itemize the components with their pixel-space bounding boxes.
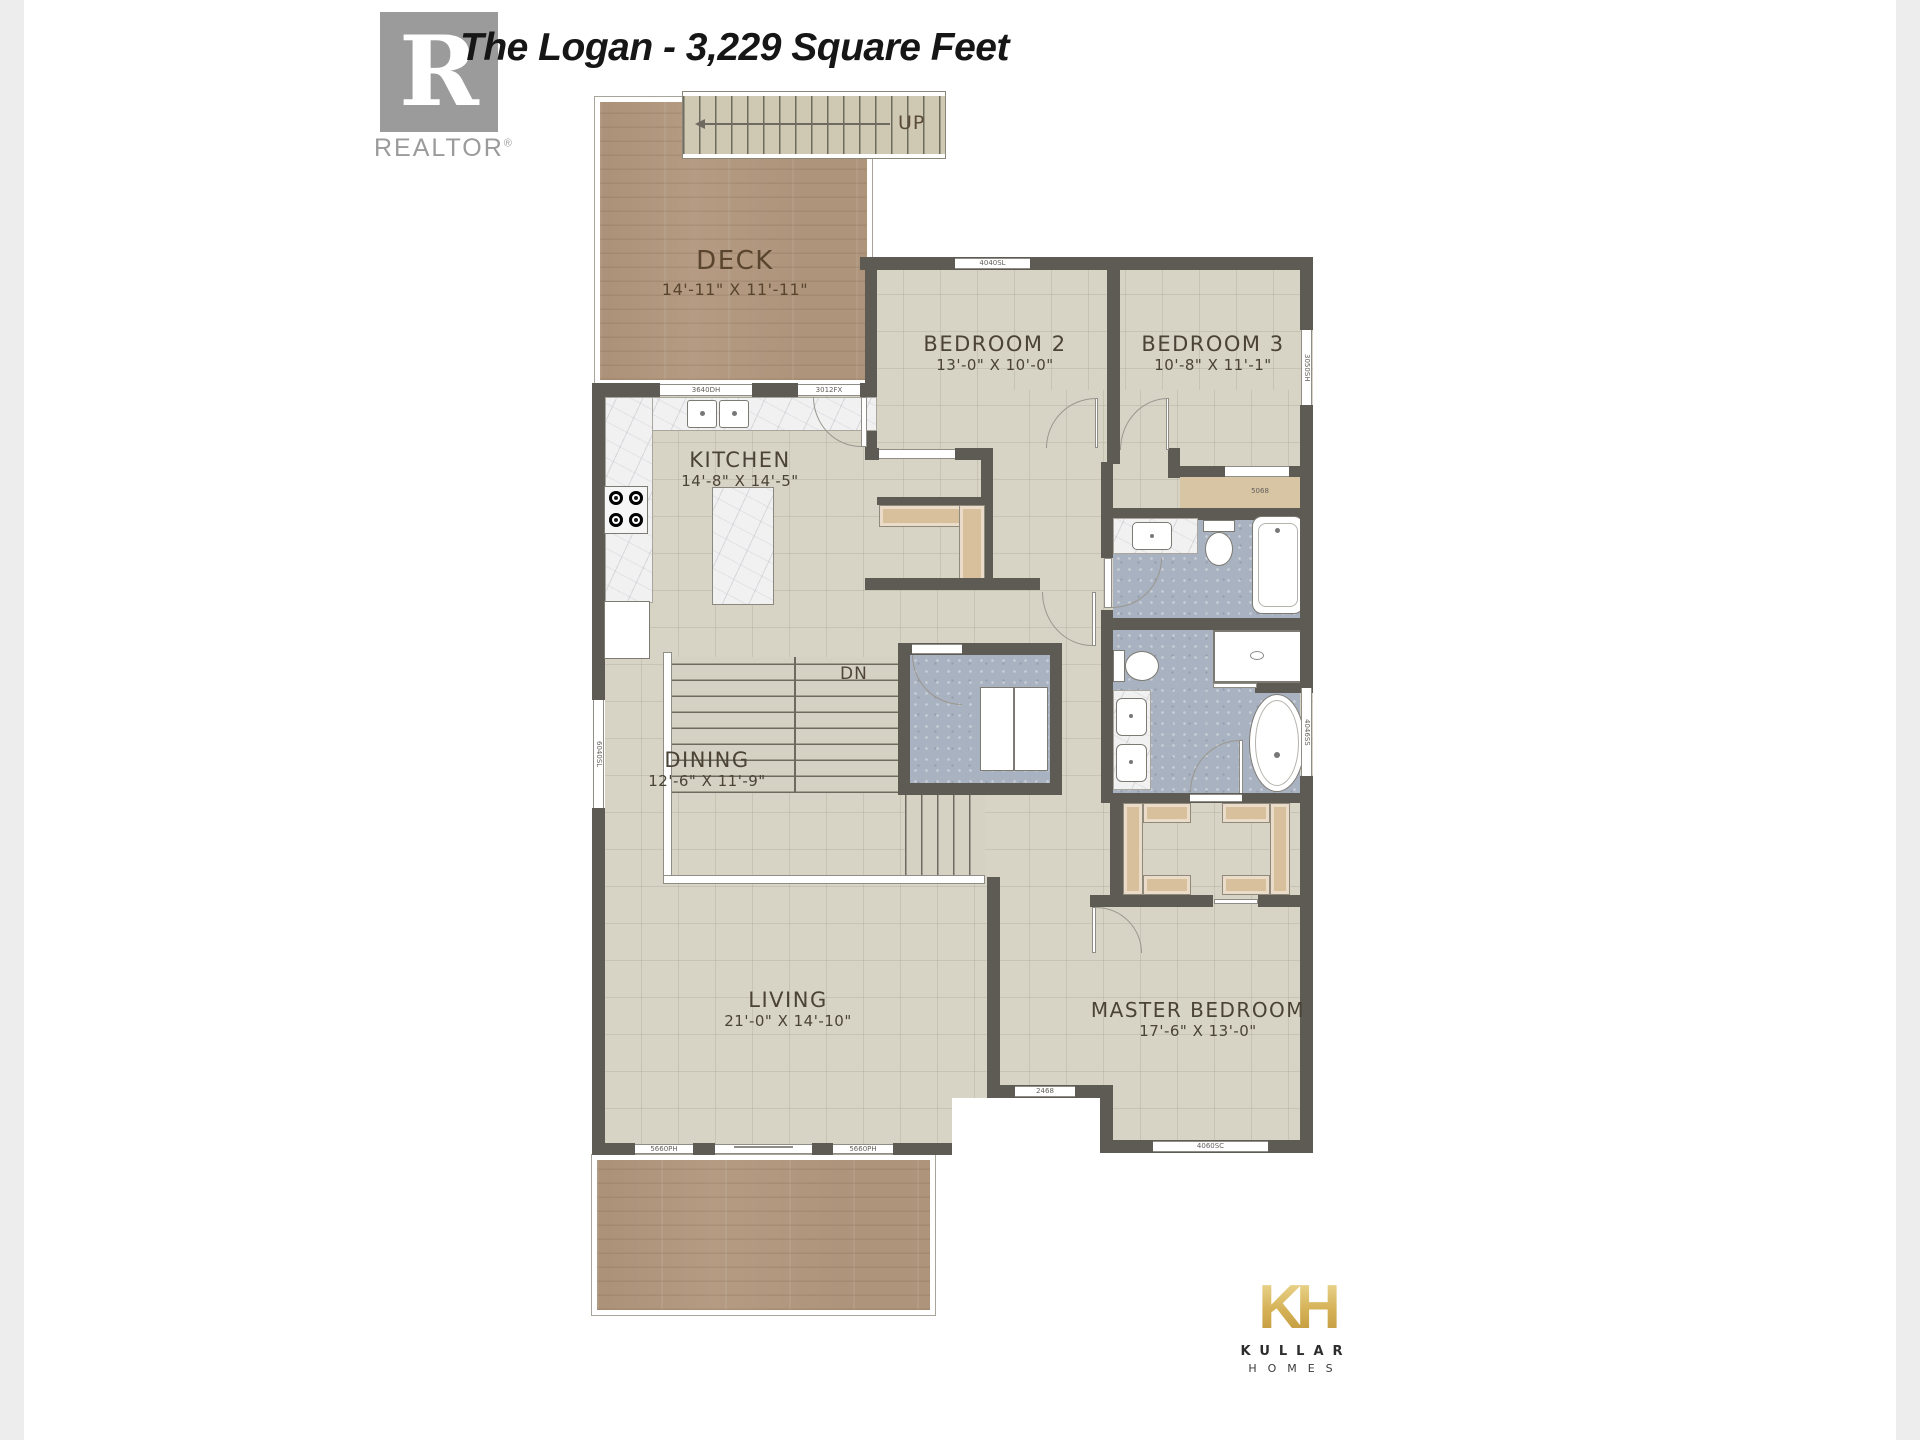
closet-shelf	[1270, 803, 1290, 895]
room-label-deck: DECK 14'-11" X 11'-11"	[600, 246, 870, 299]
wall	[877, 497, 983, 505]
wall	[893, 1143, 952, 1155]
bathtub-inner	[1258, 523, 1298, 607]
bypass-door-bedroom3-closet	[1225, 466, 1289, 477]
wall	[1050, 655, 1062, 795]
wall	[987, 877, 1000, 1085]
door-leaf	[1092, 592, 1096, 646]
kullar-wordmark: KULLAR	[1236, 1344, 1356, 1359]
window-kitchen-left: 3640DH	[660, 384, 752, 396]
wall	[1090, 895, 1213, 907]
wall	[693, 1143, 715, 1155]
room-label-bedroom3: BEDROOM 3 10'-8" X 11'-1"	[1118, 332, 1308, 374]
sink-drain	[1150, 534, 1154, 538]
window-dining-left: 6040SL	[593, 700, 604, 808]
wall	[898, 655, 910, 795]
stairs-up-label: UP	[898, 112, 925, 134]
stair-half-wall	[663, 875, 985, 884]
wall	[860, 257, 1313, 270]
closet-shelf	[959, 505, 985, 585]
stairs-direction-line	[704, 123, 890, 125]
door-size-label: 5068	[1225, 487, 1295, 495]
stove-burner	[609, 513, 623, 527]
door-leaf	[1104, 558, 1112, 608]
wall	[1168, 448, 1180, 478]
patio-sliding-door	[715, 1144, 812, 1154]
wall	[860, 383, 877, 397]
stove-burner	[609, 491, 623, 505]
toilet-bowl	[1125, 651, 1159, 681]
wall	[1101, 520, 1113, 558]
page-title: The Logan - 3,229 Square Feet	[460, 26, 1009, 70]
room-label-bedroom2: BEDROOM 2 13'-0" X 10'-0"	[895, 332, 1095, 374]
door-leaf	[1214, 899, 1258, 904]
window-living-left: 5660PH	[635, 1144, 693, 1154]
closet-shelf	[1143, 803, 1191, 823]
wall	[1289, 466, 1313, 477]
wall	[1258, 895, 1313, 907]
floor-plan-page: R REALTOR® The Logan - 3,229 Square Feet…	[0, 0, 1920, 1440]
shower-drain	[1250, 651, 1264, 660]
homes-wordmark: HOMES	[1236, 1362, 1356, 1375]
bypass-door-bedroom2-closet	[879, 449, 955, 459]
wall	[1180, 466, 1225, 477]
room-label-living: LIVING 21'-0" X 14'-10"	[688, 988, 888, 1030]
window-kitchen-right: 3012FX	[798, 384, 860, 396]
wall	[865, 578, 1040, 590]
washer-dryer-divider	[1013, 687, 1015, 771]
wic-door-opening	[1190, 794, 1242, 802]
sink-drain	[1129, 714, 1133, 718]
tub-drain	[1275, 528, 1280, 533]
wall	[592, 808, 605, 1155]
freestanding-tub-inner	[1255, 700, 1299, 786]
kullar-monogram: KH	[1236, 1278, 1356, 1338]
room-label-master: MASTER BEDROOM 17'-6" X 13'-0"	[1088, 998, 1308, 1040]
laundry-door-opening	[912, 644, 962, 654]
sink-drain	[700, 411, 705, 416]
window-master-bottom: 4060SC	[1153, 1141, 1268, 1152]
wall	[865, 448, 879, 460]
wall	[752, 383, 798, 397]
sink-drain	[1129, 760, 1133, 764]
window-living-right: 5660PH	[833, 1144, 893, 1154]
wall	[592, 1143, 635, 1155]
wall	[1101, 618, 1313, 630]
toilet-tank	[1113, 650, 1125, 682]
kullar-homes-logo: KH KULLAR HOMES	[1236, 1278, 1356, 1375]
right-edge-bar	[1896, 0, 1920, 1440]
realtor-wordmark: REALTOR®	[374, 134, 524, 163]
left-edge-bar	[0, 0, 24, 1440]
closet-shelf	[1222, 875, 1270, 895]
interior-stairs-lower-flight	[905, 795, 985, 875]
refrigerator	[604, 601, 650, 659]
door-leaf	[861, 397, 867, 447]
closet-shelf	[1222, 803, 1270, 823]
wall	[1300, 776, 1313, 1152]
window-bath-right: 4046SS	[1301, 688, 1312, 776]
exterior-notch	[952, 1098, 1100, 1160]
toilet-tank	[1203, 520, 1235, 532]
wall	[1300, 477, 1313, 688]
wall	[1110, 801, 1123, 897]
stove-burner	[629, 513, 643, 527]
stairs-down-label: DN	[840, 664, 868, 684]
toilet-bowl	[1205, 532, 1233, 566]
wall	[812, 1143, 833, 1155]
deck-lower	[592, 1155, 935, 1315]
sink-drain	[732, 411, 737, 416]
window-corridor: 2468	[1015, 1086, 1075, 1097]
tub-drain	[1274, 752, 1280, 758]
kitchen-island	[712, 487, 774, 605]
closet-shelf	[1143, 875, 1191, 895]
shower-glass	[1213, 683, 1257, 688]
wall	[898, 783, 1062, 795]
wall	[1300, 257, 1313, 330]
wall	[1101, 728, 1113, 795]
stairs-direction-arrow	[695, 119, 705, 129]
room-label-dining: DINING 12'-6" X 11'-9"	[612, 748, 802, 790]
closet-shelf	[1123, 803, 1143, 895]
stove-burner	[629, 491, 643, 505]
wall	[592, 383, 660, 397]
room-label-kitchen: KITCHEN 14'-8" X 14'-5"	[645, 448, 835, 490]
wall	[1101, 462, 1113, 512]
window-bedroom2-top: 4040SL	[955, 258, 1030, 269]
